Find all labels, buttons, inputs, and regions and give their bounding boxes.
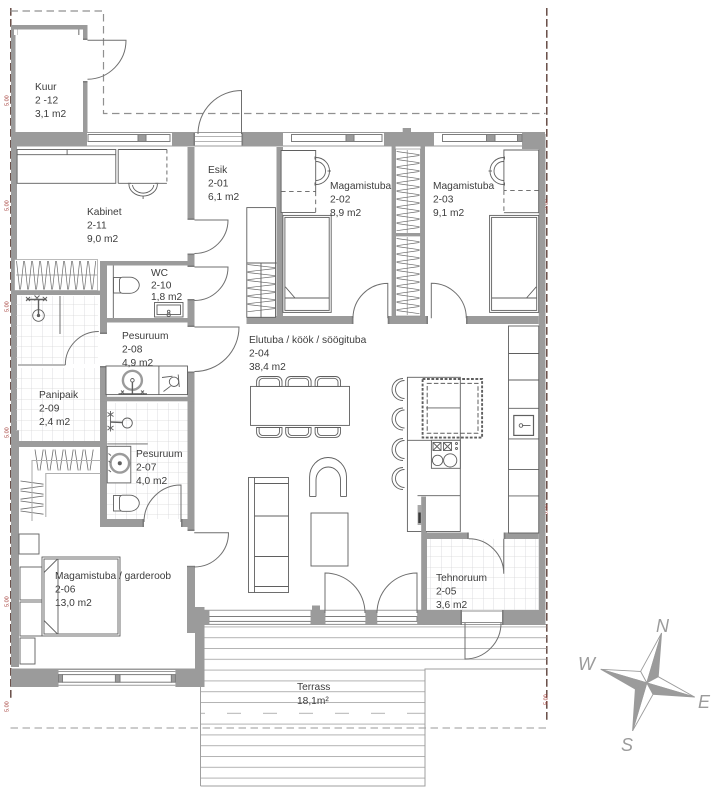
svg-text:W: W [578, 654, 597, 674]
svg-text:Magamistuba: Magamistuba [433, 181, 494, 192]
svg-text:13,0 m2: 13,0 m2 [55, 598, 92, 609]
svg-text:5.00: 5.00 [544, 694, 550, 705]
svg-text:9,1 m2: 9,1 m2 [433, 208, 464, 219]
svg-text:9,0 m2: 9,0 m2 [87, 234, 118, 245]
svg-text:2-08: 2-08 [122, 345, 143, 356]
svg-text:Magamistuba: Magamistuba [330, 181, 391, 192]
svg-text:2-04: 2-04 [249, 349, 270, 360]
svg-text:5.00: 5.00 [5, 200, 11, 211]
svg-text:E: E [698, 692, 711, 712]
svg-text:Pesuruum: Pesuruum [136, 449, 182, 460]
svg-text:2-10: 2-10 [151, 281, 172, 292]
svg-text:2-11: 2-11 [87, 221, 107, 232]
svg-text:5.00: 5.00 [5, 596, 11, 607]
svg-text:Kabinet: Kabinet [87, 207, 122, 218]
svg-text:3,1 m2: 3,1 m2 [35, 109, 66, 120]
svg-text:1,8 m2: 1,8 m2 [151, 292, 182, 303]
svg-text:2,4 m2: 2,4 m2 [39, 417, 70, 428]
svg-text:N: N [656, 616, 670, 636]
svg-text:2-05: 2-05 [436, 587, 457, 598]
svg-text:2 -12: 2 -12 [35, 96, 59, 107]
svg-text:Panipaik: Panipaik [39, 390, 79, 401]
svg-text:2-01: 2-01 [208, 179, 229, 190]
svg-text:4,0 m2: 4,0 m2 [136, 476, 167, 487]
svg-text:Kuur: Kuur [35, 82, 57, 93]
svg-text:18,1m²: 18,1m² [297, 696, 329, 707]
svg-text:Elutuba / köök / söögituba: Elutuba / köök / söögituba [249, 335, 367, 346]
svg-text:2-09: 2-09 [39, 404, 60, 415]
svg-text:38,4 m2: 38,4 m2 [249, 362, 286, 373]
svg-text:3,6 m2: 3,6 m2 [436, 600, 467, 611]
svg-text:2-06: 2-06 [55, 585, 76, 596]
svg-text:Esik: Esik [208, 165, 228, 176]
svg-text:2-03: 2-03 [433, 195, 454, 206]
svg-text:5.00: 5.00 [5, 301, 11, 312]
svg-text:Pesuruum: Pesuruum [122, 331, 168, 342]
svg-text:Terrass: Terrass [297, 682, 330, 693]
svg-text:5.00: 5.00 [5, 701, 11, 712]
svg-text:5.00: 5.00 [5, 427, 11, 438]
svg-text:2-07: 2-07 [136, 463, 157, 474]
svg-text:S: S [621, 735, 633, 755]
svg-text:5.00: 5.00 [5, 95, 11, 106]
svg-text:Magamistuba / garderoob: Magamistuba / garderoob [55, 571, 171, 582]
svg-text:4,9 m2: 4,9 m2 [122, 358, 153, 369]
svg-text:Tehnoruum: Tehnoruum [436, 573, 487, 584]
svg-text:WC: WC [151, 268, 168, 279]
svg-text:6,1 m2: 6,1 m2 [208, 192, 239, 203]
svg-text:8,9 m2: 8,9 m2 [330, 208, 361, 219]
svg-text:2-02: 2-02 [330, 195, 351, 206]
